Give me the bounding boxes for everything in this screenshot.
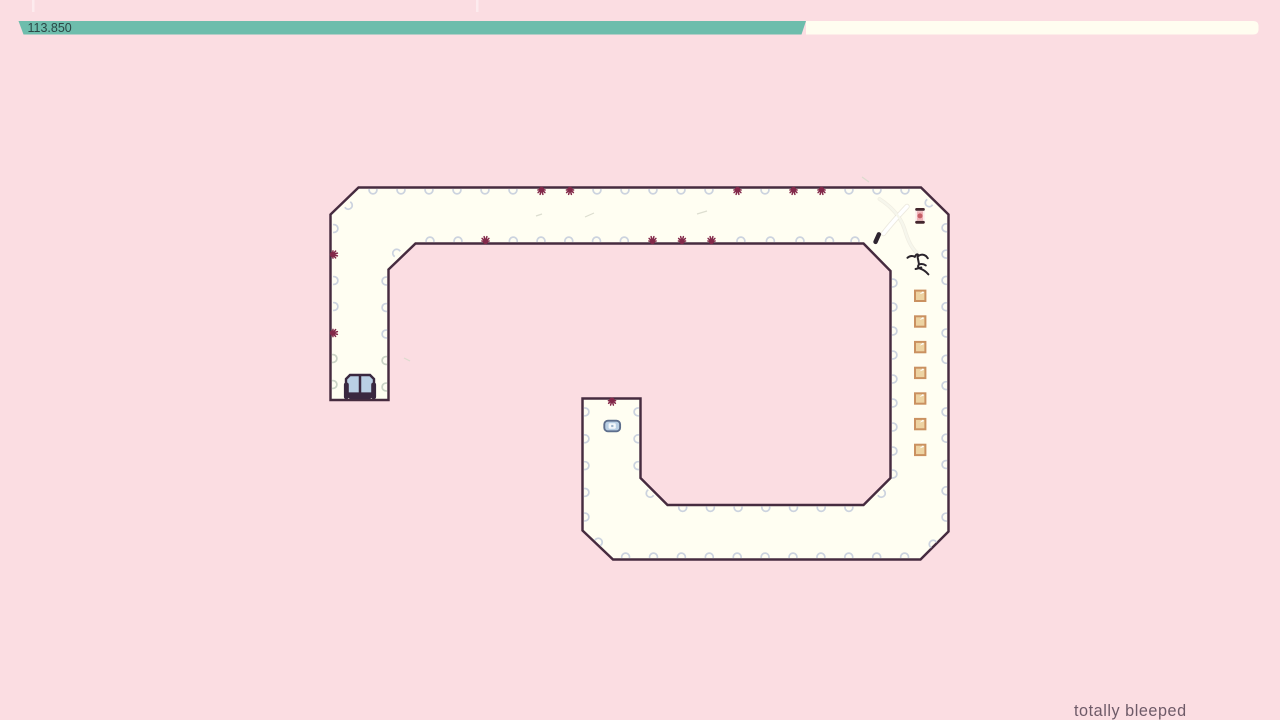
svg-text:113.850: 113.850: [28, 21, 72, 35]
svg-text:totally bleeped: totally bleeped: [1074, 702, 1187, 720]
